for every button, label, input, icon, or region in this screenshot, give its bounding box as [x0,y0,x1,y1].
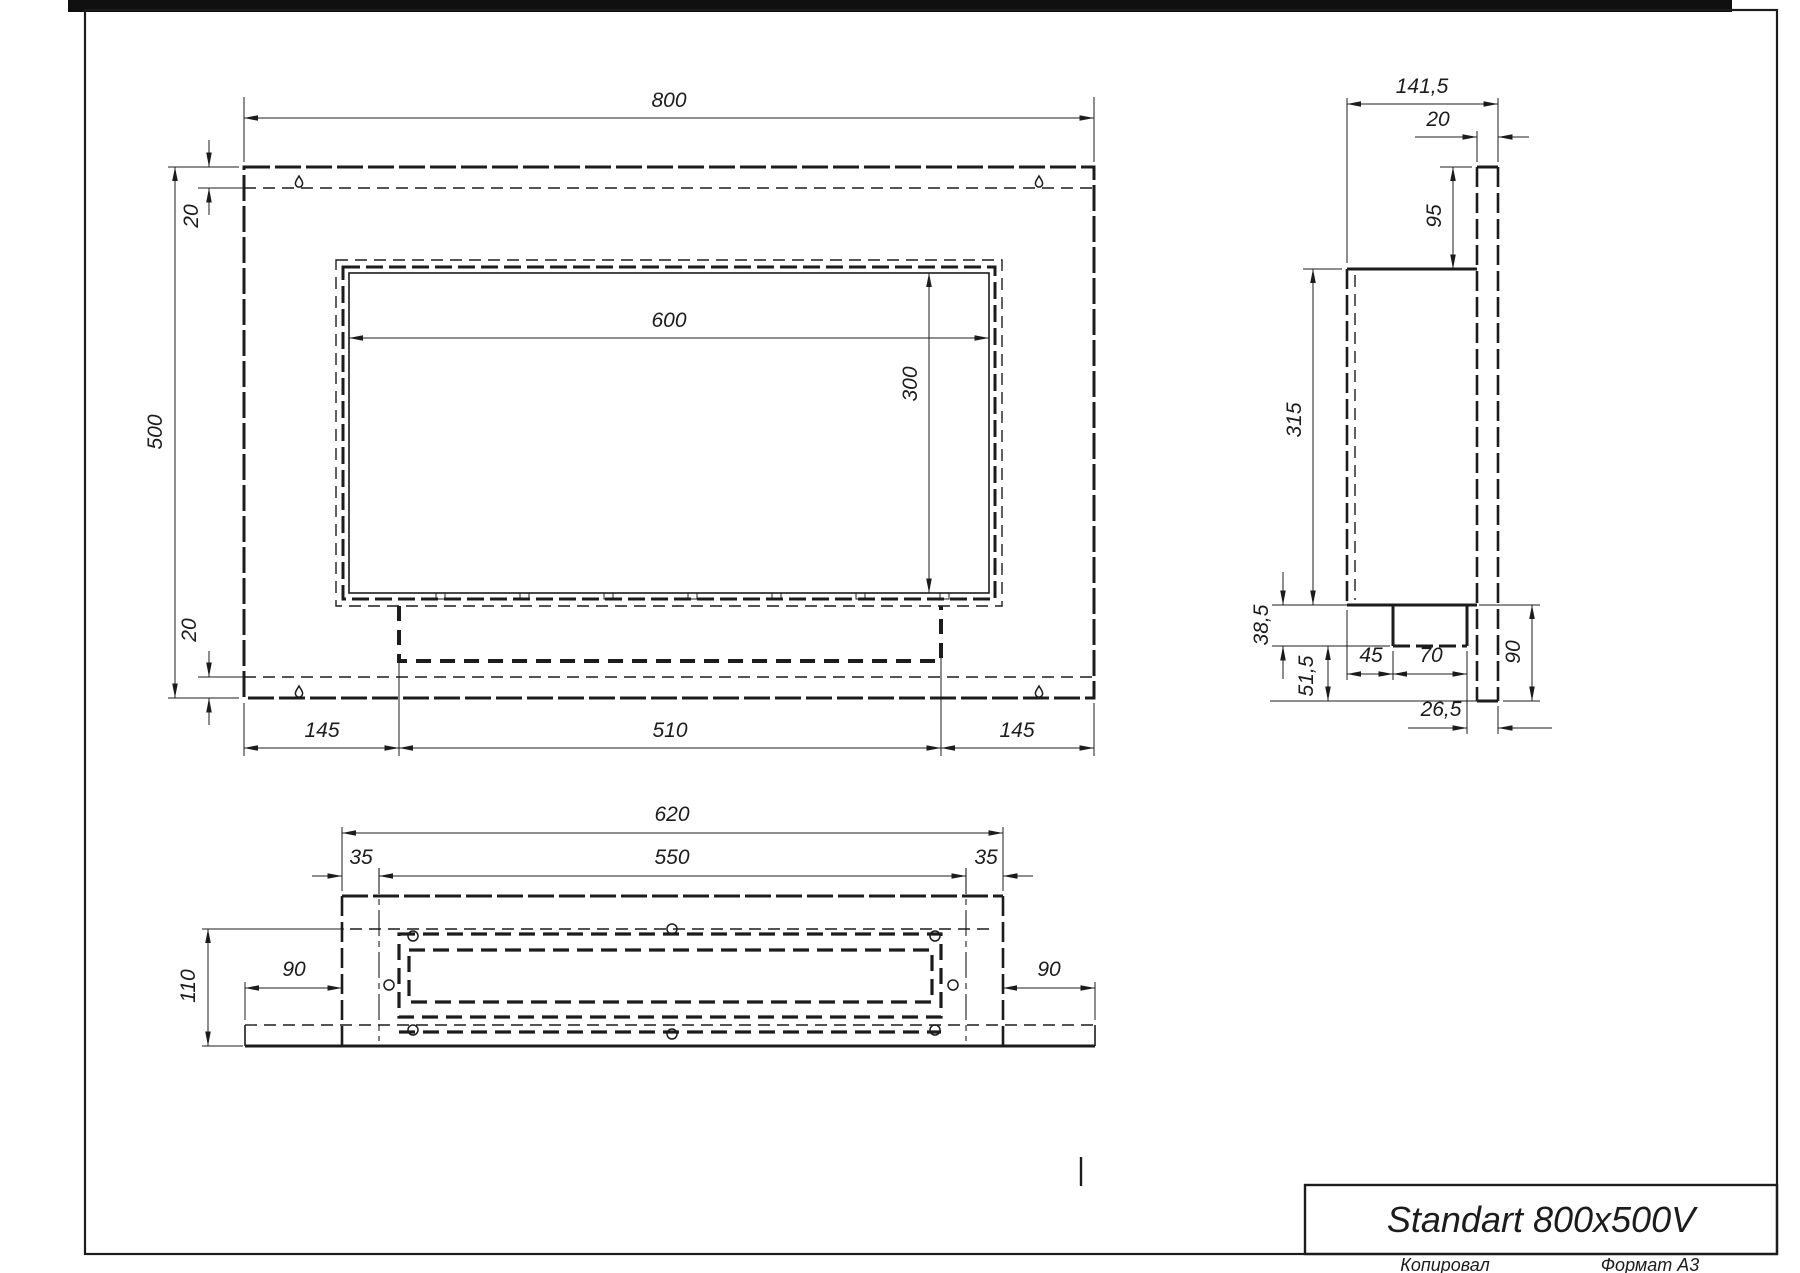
front-dimensions: 800 500 20 20 600 300 [144,89,1094,756]
dim-left-overhang: 90 [282,958,306,981]
keyhole-icon [1035,686,1042,697]
dim-bottom-depth: 110 [177,969,200,1003]
dim-burner-width: 510 [652,719,687,742]
side-dimensions: 141,5 20 95 315 38,5 51,5 [1250,75,1552,734]
dim-plate-thickness: 20 [1425,108,1450,131]
bottom-tray-outer [399,934,941,1017]
dim-tray-drop: 38,5 [1250,604,1273,645]
drawing-sheet: 800 500 20 20 600 300 [0,0,1800,1273]
dim-tray-to-plate: 26,5 [1420,698,1462,721]
dim-front-right-offset: 145 [999,719,1034,742]
dim-right-inset: 35 [974,846,998,869]
dim-front-to-tray: 45 [1359,644,1383,667]
bottom-view: 620 550 35 35 110 90 90 [177,803,1095,1046]
dim-front-width: 800 [651,89,686,112]
dim-left-inset: 35 [349,846,373,869]
dim-front-height: 500 [144,414,167,449]
dim-front-left-offset: 145 [304,719,339,742]
sheet-border [85,10,1777,1254]
dim-right-overhang: 90 [1037,958,1061,981]
dim-mount-width: 550 [654,846,689,869]
dim-below-box: 90 [1502,640,1525,664]
bottom-dimensions: 620 550 35 35 110 90 90 [177,803,1095,1046]
bottom-tray-inner [409,950,932,1002]
drawing-canvas: 800 500 20 20 600 300 [0,0,1800,1273]
dim-bottom-box-width: 620 [654,803,689,826]
front-burner-tray [399,606,941,661]
dim-front-bottom-inset: 20 [178,618,201,643]
title-block: Standart 800x500V [1081,1157,1777,1254]
screw-holes [384,924,958,1039]
dim-box-height: 315 [1283,402,1306,437]
footer-format-label: Формат A3 [1601,1255,1700,1273]
drawing-title: Standart 800x500V [1387,1199,1698,1240]
dim-side-depth: 141,5 [1396,75,1449,98]
dim-front-top-inset: 20 [180,204,203,229]
dim-opening-height: 300 [899,366,922,401]
dim-top-to-box: 95 [1423,204,1446,228]
side-view: 141,5 20 95 315 38,5 51,5 [1250,75,1552,734]
keyhole-icon [295,686,302,697]
keyhole-icon [1035,176,1042,187]
dim-opening-width: 600 [651,309,686,332]
front-frame-outline [244,167,1094,698]
dim-tray-depth: 70 [1419,644,1443,667]
keyhole-icon [295,176,302,187]
dim-tray-to-bottom: 51,5 [1295,655,1318,696]
front-view: 800 500 20 20 600 300 [144,89,1094,756]
footer-copied-label: Копировал [1400,1255,1490,1273]
